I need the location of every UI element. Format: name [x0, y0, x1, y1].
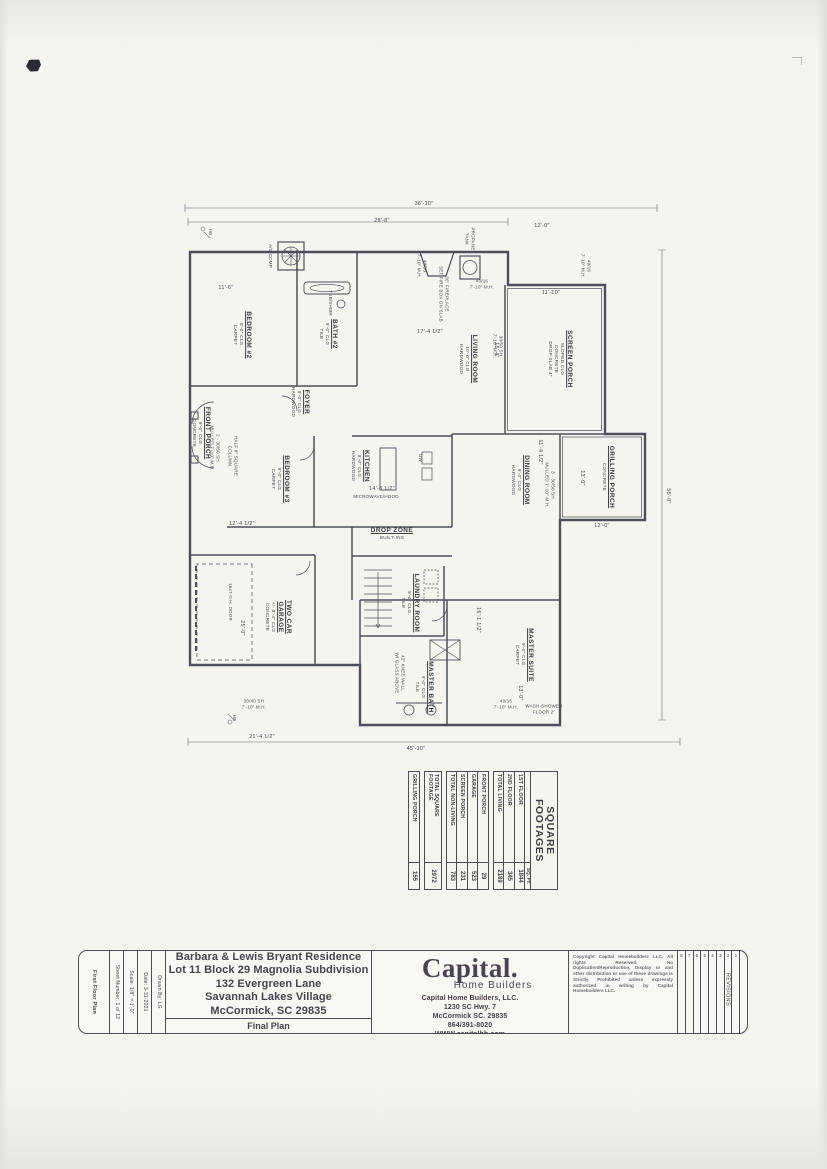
room-detail: DROP SLAB 4" — [547, 330, 553, 388]
sheet-info-strip: Date: 3-31-2021 — [138, 951, 152, 1033]
room-label: TWO CAR GARAGE+/- 9'-4" CLGCONCRETE — [264, 600, 292, 634]
sheet-info-strip: Scale: 1/8" = 1'-0" — [124, 951, 138, 1033]
room-label: SCREEN PORCHSLOPED CLGCONCRETEDROP SLAB … — [547, 330, 573, 388]
dimension-label: 12'-0" — [534, 223, 550, 229]
footage-row: GARAGE523 — [468, 772, 479, 889]
room-label: FRONT PORCH9'-0" CLGCONCRETE — [191, 407, 211, 459]
room-name: LIVING ROOM — [470, 335, 478, 383]
room-detail: CONCRETE — [553, 330, 559, 388]
annotation-label: 42" KNEE WALL W/ GLASS ABOVE — [394, 652, 405, 693]
revision-column: 8 — [678, 951, 686, 1033]
revision-column: 1 — [732, 951, 740, 1033]
footage-row: SCREEN PORCH231 — [457, 772, 468, 889]
room-label: BATH #29'-0" CLGTILE — [318, 319, 338, 349]
room-name: BEDROOM #2 — [244, 311, 252, 358]
footage-header-spacer — [525, 772, 530, 862]
dimension-label: 45'-10" — [407, 746, 426, 752]
room-detail: HARDWOOD — [290, 387, 296, 417]
room-detail: 9'-0" CLG — [356, 450, 362, 482]
annotation-label: 30/50 SH 7'-10" M.H. — [492, 334, 503, 358]
dimension-label: 28'-8" — [374, 218, 390, 224]
dimension-label: 11'-10" — [542, 290, 560, 296]
annotation-label: 36" FIREPLACE SET FIRE BOX ON SLAB — [438, 266, 449, 322]
footage-row-label: GRILLING PORCH — [409, 772, 419, 862]
room-name: MASTER BATH — [426, 661, 434, 713]
dimension-label: 56'-0" — [665, 488, 671, 504]
room-label: BEDROOM #29'-0" CLG.CARPET — [232, 311, 252, 358]
sheet-info-strip: Sheet Number: 1 of 12 — [110, 951, 124, 1033]
room-name: MASTER SUITE — [526, 628, 534, 682]
project-address-lines: Barbara & Lewis Bryant ResidenceLot 11 B… — [166, 951, 371, 1018]
scan-edge-shading — [817, 0, 827, 1169]
footage-row: 1ST FLOOR1844 — [515, 772, 526, 889]
room-detail: HARDWOOD — [350, 450, 356, 482]
address-line: McCormick, SC 29835 — [166, 1005, 371, 1018]
room-detail: CARPET — [270, 455, 276, 502]
footage-row-value: 345 — [504, 862, 514, 889]
room-name: KITCHEN — [362, 450, 370, 482]
builder-line: 1230 SC Hwy. 7 — [372, 1003, 568, 1012]
room-label: DINING ROOM9'-0" CLGHARDWOOD — [510, 455, 530, 505]
room-label: KITCHEN9'-0" CLGHARDWOOD — [350, 450, 370, 482]
footage-row-value: 523 — [468, 862, 478, 889]
room-name: TWO CAR GARAGE — [276, 600, 292, 634]
dimension-label: 16'-1 1/2" — [475, 607, 481, 633]
room-name: SCREEN PORCH — [565, 330, 573, 388]
footage-row-label: TOTAL SQUARE FOOTAGE — [425, 772, 441, 862]
footage-row-label: FRONT PORCH — [478, 772, 488, 862]
room-label: BEDROOM #39'-0" CLGCARPET — [270, 455, 290, 502]
revision-column: 4 — [709, 951, 717, 1033]
footage-row: 2ND FLOOR345 — [504, 772, 515, 889]
sheet-info-strips: First Floor PlanSheet Number: 1 of 12Sca… — [79, 951, 166, 1033]
sheet-info-text: First Floor Plan — [91, 970, 97, 1014]
sheet-info-text: Date: 3-31-2021 — [142, 972, 148, 1011]
address-line: Savannah Lakes Village — [166, 991, 371, 1004]
sheet-info-strip: First Floor Plan — [79, 951, 110, 1033]
footage-row-label: 2ND FLOOR — [504, 772, 514, 862]
dimension-label: 17'-4 1/2" — [417, 329, 443, 335]
builder-line: WWW.capitalhb.com — [372, 1030, 568, 1034]
room-name: GRILLING PORCH — [607, 446, 615, 508]
footage-group: FRONT PORCH29GARAGE523SCREEN PORCH231TOT… — [446, 771, 489, 890]
footage-group: TOTAL SQUARE FOOTAGE2972 — [424, 771, 442, 890]
room-detail: TILE — [400, 574, 406, 633]
address-line: Barbara & Lewis Bryant Residence — [166, 951, 371, 964]
sheet-info-text: Sheet Number: 1 of 12 — [114, 965, 120, 1020]
room-label: LIVING ROOM10'-0" CLGHARDWOOD — [458, 335, 478, 383]
scan-artifact-mark — [25, 58, 42, 74]
footage-row-label: SCREEN PORCH — [457, 772, 467, 862]
footage-row: TOTAL LIVING2189 — [494, 772, 505, 889]
room-detail: CARPET — [514, 628, 520, 682]
room-detail: CARPET — [232, 311, 238, 358]
room-name: FOYER — [302, 387, 310, 417]
footage-row-label: GARAGE — [468, 772, 478, 862]
sheet-info-strip: Drawn By: LG — [152, 951, 166, 1033]
room-detail: BUILT-INS — [371, 535, 413, 541]
annotation-label: 16x7 O.H. DOOR — [227, 583, 233, 621]
room-detail: CONCRETE — [264, 600, 270, 634]
footage-row-value: 2972 — [425, 862, 441, 889]
address-line: 132 Evergreen Lane — [166, 978, 371, 991]
annotation-label: 40/16 7'-10" M.H. — [494, 698, 518, 709]
annotation-label: MICROWAVE/HOOD — [353, 494, 398, 500]
room-name: DINING ROOM — [522, 455, 530, 505]
revision-column: 6 — [694, 951, 702, 1033]
room-label: GRILLING PORCHCONCRETE — [601, 446, 615, 508]
builder-line: 864/391-8020 — [372, 1021, 568, 1030]
room-detail: HARDWOOD — [510, 455, 516, 505]
annotation-label: 40/10 7'-10" M.H. — [416, 254, 427, 278]
sheet-info-text: Scale: 1/8" = 1'-0" — [128, 970, 134, 1013]
footage-row-value: 231 — [457, 862, 467, 889]
room-detail: TILE — [414, 661, 420, 713]
title-block: First Floor PlanSheet Number: 1 of 12Sca… — [78, 950, 748, 1034]
room-name: LAUNDRY ROOM — [412, 574, 420, 633]
dimension-label: 36'-10" — [415, 201, 434, 207]
room-detail: HARDWOOD — [458, 335, 464, 383]
annotation-label: 40/16 7'-10" M.H. — [470, 278, 494, 289]
revisions-block: 87654321REVISIONS — [678, 951, 747, 1033]
footage-row-value: 29 — [478, 862, 488, 889]
footage-group: SQUARE FOOTAGESSQ. FT.1ST FLOOR18442ND F… — [493, 771, 558, 890]
footage-table-title: SQUARE FOOTAGES — [531, 772, 557, 889]
room-label: DROP ZONEBUILT-INS — [371, 527, 413, 541]
dimension-label: 12'-0" — [594, 523, 610, 529]
footage-unit-header: SQ. FT. — [525, 862, 530, 889]
scan-edge-shading — [0, 0, 8, 1169]
copyright-block: Copyright Capital Homebuilders LLC. All … — [569, 951, 678, 1033]
annotation-label: A/C COMP — [267, 244, 273, 268]
builder-line: McCormick SC. 29835 — [372, 1012, 568, 1021]
room-label: MASTER BATH9'-0" CLGTILE — [414, 661, 434, 713]
dimension-label: 11'-6" — [218, 285, 233, 291]
footage-row-value: 2189 — [494, 862, 504, 889]
room-label: LAUNDRY ROOM9'-0" CLG.TILE — [400, 574, 420, 633]
annotation-label: HALF 8" SQUARE COLUMN — [227, 436, 238, 476]
footage-row-value: 1844 — [515, 862, 525, 889]
floor-plan-drawing: SCREEN PORCHSLOPED CLGCONCRETEDROP SLAB … — [172, 196, 682, 761]
scan-edge-shading — [0, 0, 827, 46]
annotation-label: WASH-SHOWER FLOOR 2" — [525, 703, 562, 714]
footage-row-label: 1ST FLOOR — [515, 772, 525, 862]
room-detail: 9'-0" CLG — [324, 319, 330, 349]
room-name: BATH #2 — [330, 319, 338, 349]
footage-row: TOTAL NON-LIVING783 — [447, 772, 458, 889]
footage-row-value: 783 — [447, 862, 457, 889]
footage-row: FRONT PORCH29 — [478, 772, 488, 889]
footage-row-label: TOTAL LIVING — [494, 772, 504, 862]
floor-plan-rotated-canvas: SCREEN PORCHSLOPED CLGCONCRETEDROP SLAB … — [172, 196, 682, 761]
dimension-label: 13'-0" — [579, 470, 585, 486]
scanned-floor-plan-page: SCREEN PORCHSLOPED CLGCONCRETEDROP SLAB … — [0, 0, 827, 1169]
revision-column: 5 — [701, 951, 709, 1033]
annotation-label: 40/16 7'-10" M.H. — [580, 254, 591, 278]
dimension-label: 12'-4 1/2" — [229, 521, 255, 527]
copyright-text: Copyright Capital Homebuilders LLC. All … — [573, 954, 673, 994]
scan-edge-shading — [0, 1089, 827, 1169]
project-address-block: Barbara & Lewis Bryant ResidenceLot 11 B… — [166, 951, 372, 1033]
capital-logo: Capital. — [372, 955, 568, 982]
plan-status-label: Final Plan — [166, 1018, 371, 1033]
annotation-label: TUB/SHWR — [327, 290, 333, 316]
annotation-label: 3 - 30/50 SH MULLED 7'-10" M.H. — [544, 462, 555, 507]
footage-header-row: SQ. FT. — [525, 772, 531, 889]
annotation-label: DW — [417, 454, 423, 462]
builder-block: Capital. Home Builders Capital Home Buil… — [372, 951, 569, 1033]
sheet-info-text: Drawn By: LG — [156, 975, 162, 1009]
footage-row: TOTAL SQUARE FOOTAGE2972 — [425, 772, 441, 889]
annotation-label: 2 - 30/50 SH MULLED 7'-10" M.H. — [209, 425, 220, 470]
room-detail: TILE — [318, 319, 324, 349]
dimension-label: 11'-4 1/2" — [537, 439, 543, 464]
square-footages-rotated: SQUARE FOOTAGESSQ. FT.1ST FLOOR18442ND F… — [392, 771, 558, 890]
revision-column: 3 — [717, 951, 725, 1033]
revisions-header-column: REVISIONS — [740, 951, 747, 1033]
builder-contact-lines: Capital Home Builders, LLC.1230 SC Hwy. … — [372, 994, 568, 1034]
revisions-header-text: REVISIONS — [724, 973, 730, 1006]
dimension-label: 14'-8 1/2" — [369, 486, 395, 492]
annotation-label: HB — [207, 229, 213, 236]
footage-row-label: TOTAL NON-LIVING — [447, 772, 457, 862]
room-detail: +/- 9'-4" CLG — [270, 600, 276, 634]
room-detail: CONCRETE — [191, 407, 197, 459]
annotation-label: HB — [231, 715, 237, 722]
room-detail: 9'-0" CLG — [296, 387, 302, 417]
scan-artifact-tick — [792, 57, 802, 65]
address-line: Lot 11 Block 29 Magnolia Subdivision — [166, 964, 371, 977]
footage-group: GRILLING PORCH155 — [408, 771, 420, 890]
dimension-label: 21'-4 1/2" — [249, 734, 275, 740]
annotation-label: 30/40 SH 7'-10" M.H. — [242, 698, 266, 709]
annotation-label: PROPANE TANK — [464, 227, 475, 250]
room-name: BEDROOM #3 — [282, 455, 290, 502]
room-label: FOYER9'-0" CLGHARDWOOD — [290, 387, 310, 417]
room-name: DROP ZONE — [371, 527, 413, 535]
square-footages-table: SQUARE FOOTAGESSQ. FT.1ST FLOOR18442ND F… — [392, 771, 558, 890]
revision-column: 7 — [686, 951, 694, 1033]
footage-row-value: 155 — [409, 862, 419, 889]
room-label: MASTER SUITE9'-0" CLG.CARPET — [514, 628, 534, 682]
builder-line: Capital Home Builders, LLC. — [372, 994, 568, 1003]
footage-row: GRILLING PORCH155 — [409, 772, 419, 889]
dimension-label: 25'-0" — [239, 620, 245, 636]
